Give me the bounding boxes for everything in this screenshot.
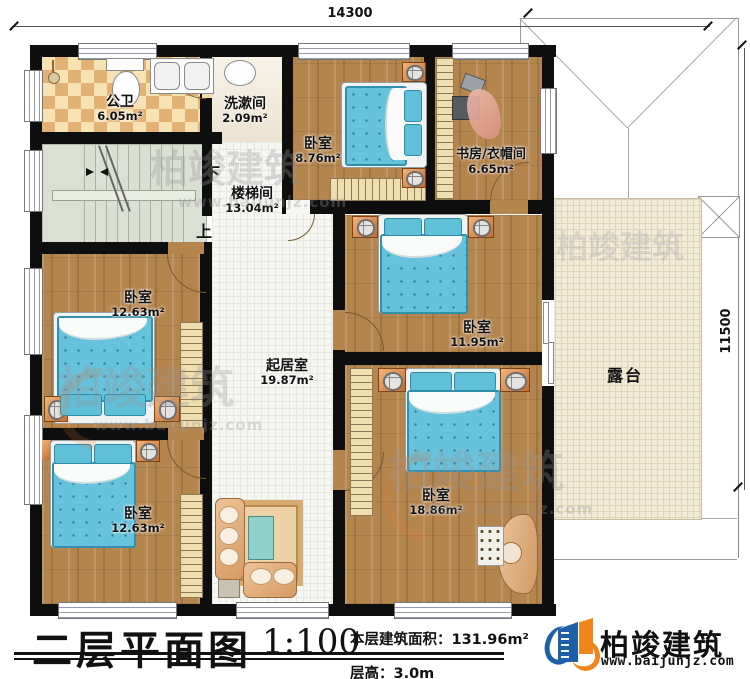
room-label-bedroom-top: 卧室 8.76m² [285,136,351,165]
window [58,602,177,619]
nightstand [378,368,406,392]
brand-logo-icon [545,618,597,670]
sink-basin [184,62,210,90]
stair-direction-arrow [100,168,108,176]
bed-pillow [424,218,462,236]
nightstand [402,168,426,188]
toilet-tank [106,58,144,71]
room-area: 19.87m² [251,374,323,387]
bed-pillow [404,90,422,122]
room-label-bedroom-master: 卧室 18.86m² [401,488,471,517]
dimension-top-value: 14300 [320,6,380,21]
sofa-cushion [219,527,239,545]
window [394,602,512,619]
room-area: 6.05m² [75,110,165,123]
room-label-stairwell: 楼梯间 13.04m² [214,186,290,215]
floor-area-text: 本层建筑面积：131.96m² [350,628,529,649]
wardrobe [180,322,203,428]
terrace-column-marker [698,196,740,238]
door-opening [168,242,204,254]
room-name: 公卫 [75,94,165,110]
dimension-right-value: 11500 [719,301,737,361]
wall-bath-bottom [30,132,222,144]
window [24,415,43,505]
drawing-title: 二层平面图 [32,618,252,676]
coffee-table [248,516,274,560]
room-area: 6.65m² [446,163,536,176]
nightstand [500,368,530,392]
door-opening [333,310,345,350]
stairs-down-label: 下 [204,160,220,184]
sofa-cushion [273,568,295,585]
shower-hose [52,60,54,72]
bed-pillow [410,372,452,391]
room-label-washroom: 洗漱间 2.09m² [210,96,280,125]
roof-ridge-line [628,128,629,199]
wall-living-right [333,214,345,616]
nightstand-lamp [406,65,424,81]
drawing-scale: 1:100 [262,622,360,662]
title-underline [14,658,504,660]
room-name: 楼梯间 [214,186,290,202]
floor-height-text: 层高：3.0m [350,662,434,679]
bed-pillow [454,372,496,391]
wardrobe [350,368,373,516]
nightstand-lamp [473,219,492,237]
window [298,43,410,60]
room-label-bath: 公卫 6.05m² [75,94,165,123]
nightstand-lamp [357,219,376,237]
nightstand [136,440,160,462]
room-name: 卧室 [401,488,471,504]
room-name: 卧室 [285,136,351,152]
nightstand [468,216,494,238]
terrace-door-panel [543,302,549,344]
dimension-tick [523,8,533,18]
bed-pillow [404,124,422,156]
nightstand-lamp [383,372,403,391]
nightstand [352,216,378,238]
nightstand [42,440,50,460]
nightstand-lamp [505,372,526,391]
sofa-cushion [250,568,272,585]
window [24,268,43,355]
nightstand [402,62,426,82]
room-area: 12.63m² [103,522,173,535]
washroom-sink [224,60,256,86]
terrace-right-border [700,198,739,558]
room-label-terrace: 露台 [607,362,643,386]
window [24,70,43,122]
wardrobe [180,494,203,598]
window [24,150,43,212]
room-name: 起居室 [251,358,323,374]
dimension-line-right [744,48,745,490]
closet [436,58,454,200]
room-name: 卧室 [442,320,512,336]
title-underline [14,652,504,655]
nightstand [154,396,180,422]
room-name: 卧室 [103,506,173,522]
stair-direction-arrow [86,168,94,176]
terrace-door-panel [548,342,554,384]
window [540,88,557,154]
room-name: 卧室 [103,290,173,306]
sink-basin [154,62,180,90]
door-opening [168,428,204,440]
room-area: 13.04m² [214,202,290,215]
nightstand-lamp [140,443,158,461]
room-label-bedroom-mid-left: 卧室 12.63m² [103,290,173,319]
sofa-cushion [219,506,239,524]
floor-plan-canvas: 公卫 6.05m² 洗漱间 2.09m² 下 楼梯间 13.04m² 上 卧室 … [0,0,750,679]
bed-pillow [94,444,132,464]
window [236,602,329,619]
room-area: 8.76m² [285,152,351,165]
dimension-line-top [13,26,710,27]
terrace-floor [548,198,702,520]
stairs-up-label: 上 [196,218,212,242]
bed-pillow [60,394,102,416]
bed-pillow [384,218,422,236]
room-area: 12.63m² [103,306,173,319]
room-label-living: 起居室 19.87m² [251,358,323,387]
small-rug [477,526,504,566]
room-label-study: 书房/衣帽间 6.65m² [446,148,536,176]
sofa-cushion [219,548,239,566]
room-area: 2.09m² [210,112,280,125]
room-name: 书房/衣帽间 [446,148,536,163]
room-name: 洗漱间 [210,96,280,112]
room-label-bedroom-mid: 卧室 11.95m² [442,320,512,349]
bed-pillow [104,394,146,416]
shower-head [48,72,60,84]
brand-website: www.baijunjz.com [601,654,734,669]
nightstand-lamp [159,400,178,420]
terrace-bottom-border [548,518,737,560]
door-opening [333,450,345,490]
bed-pillow [54,444,92,464]
window [452,43,529,60]
room-area: 11.95m² [442,336,512,349]
room-area: 18.86m² [401,504,471,517]
nightstand-lamp [406,171,424,187]
wall-bedrooms-right-divider [345,352,554,365]
room-label-bedroom-bottom-left: 卧室 12.63m² [103,506,173,535]
door-opening [490,200,528,214]
